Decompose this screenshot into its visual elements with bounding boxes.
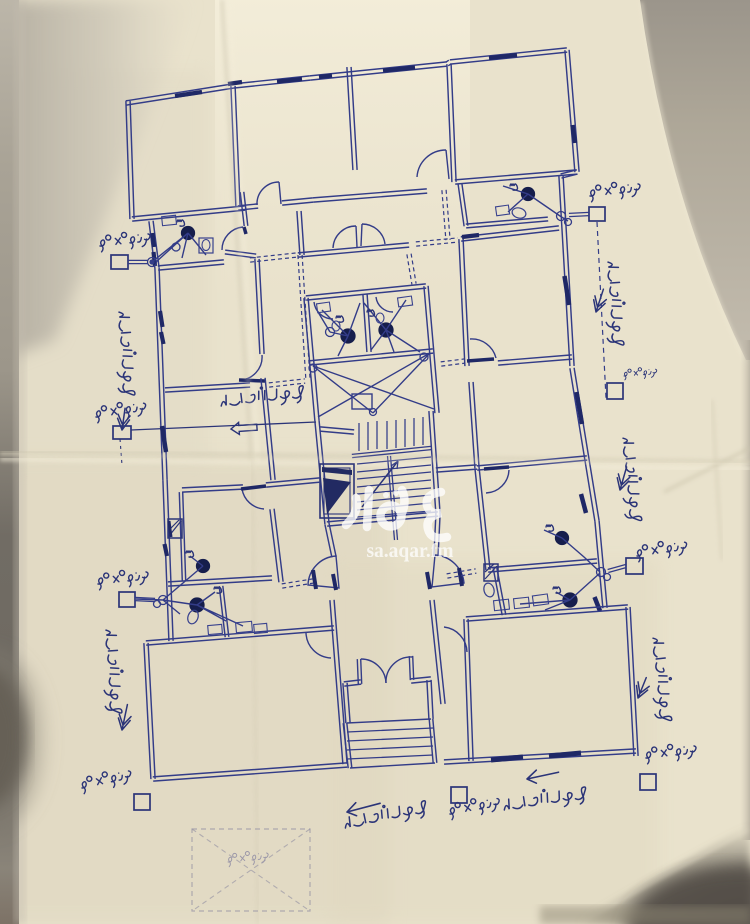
svg-text:sa.aqar.fm: sa.aqar.fm: [366, 541, 453, 562]
